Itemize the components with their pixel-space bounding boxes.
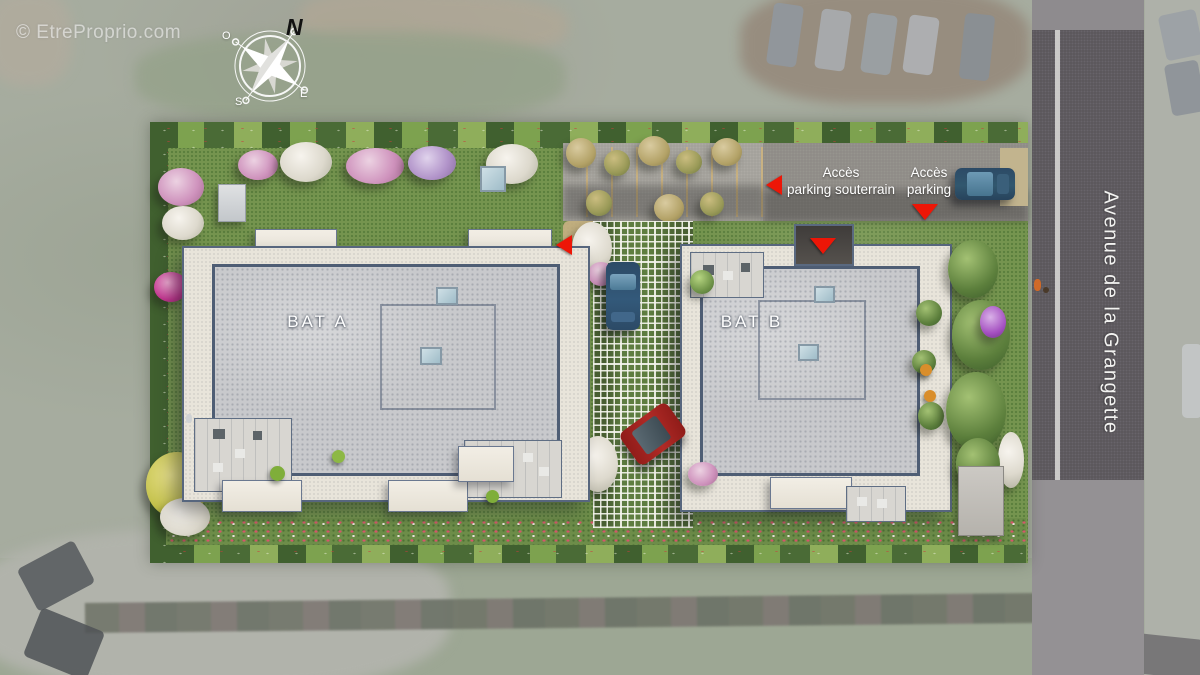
garden-structure xyxy=(958,466,1004,536)
flower-shrub xyxy=(980,306,1006,338)
garden-tree xyxy=(948,240,998,298)
blue-car xyxy=(606,262,640,330)
skylight xyxy=(420,347,442,365)
access-arrow-building-a-icon xyxy=(556,235,572,255)
compass-east-label: E xyxy=(300,88,307,100)
building-a-label: BAT A xyxy=(268,312,368,332)
site-plan-render: BAT A BAT B xyxy=(0,0,1200,675)
blossom-tree xyxy=(408,146,456,180)
street-name-label: Avenue de la Grangette xyxy=(1099,173,1122,453)
skylight xyxy=(814,286,835,303)
skylight xyxy=(436,287,458,305)
access-arrow-parking-icon xyxy=(912,204,938,220)
terrace xyxy=(846,486,906,522)
background-lawn xyxy=(135,32,565,122)
parasol xyxy=(270,466,285,481)
underground-access-label: Accès parking souterrain xyxy=(778,164,904,198)
parasol xyxy=(486,490,499,503)
terrace-plant xyxy=(916,300,942,326)
road-faded xyxy=(1032,0,1144,32)
awning xyxy=(388,480,468,512)
ornamental-tree xyxy=(604,150,630,176)
parked-car xyxy=(1182,344,1200,418)
parasol xyxy=(924,390,936,402)
ornamental-tree xyxy=(700,192,724,216)
awning xyxy=(458,446,514,482)
parasol xyxy=(332,450,345,463)
hedge-bottom xyxy=(166,545,1026,563)
surface-access-label: Accès parking xyxy=(894,164,964,198)
blossom-tree xyxy=(280,142,332,182)
compass-north-label: N xyxy=(286,14,303,41)
flower-shrub xyxy=(688,462,718,486)
pedestrian-dog xyxy=(1043,287,1049,293)
watermark: © EtreProprio.com xyxy=(16,22,181,44)
terrace-plant xyxy=(918,402,944,430)
ornamental-tree xyxy=(654,194,684,222)
compass-west-label: O xyxy=(222,30,231,42)
blue-car-street xyxy=(955,168,1015,200)
compass-rose: N O S E xyxy=(220,14,320,118)
ornamental-tree xyxy=(676,150,702,174)
awning xyxy=(222,480,302,512)
compass-south-label: S xyxy=(235,96,242,108)
access-arrow-ramp-icon xyxy=(810,238,836,254)
ornamental-tree xyxy=(566,138,596,168)
garden-shed xyxy=(218,184,246,222)
road-faded xyxy=(1032,478,1144,675)
skylight xyxy=(798,344,819,361)
street-avenue-grangette xyxy=(1032,30,1144,480)
ornamental-tree xyxy=(712,138,742,166)
flower-shrub xyxy=(238,150,278,180)
building-b-label: BAT B xyxy=(702,312,802,332)
flower-shrub xyxy=(162,206,204,240)
parasol xyxy=(920,364,932,376)
ornamental-tree xyxy=(586,190,612,216)
road-center-line xyxy=(1055,30,1060,480)
person xyxy=(186,414,192,423)
pedestrian xyxy=(1034,279,1041,291)
terrace-plant xyxy=(690,270,714,294)
flower-shrub xyxy=(160,498,210,536)
skylight xyxy=(480,166,506,192)
blossom-tree xyxy=(346,148,404,184)
awning xyxy=(770,477,852,509)
flower-shrub xyxy=(158,168,204,206)
ornamental-tree xyxy=(638,136,670,166)
